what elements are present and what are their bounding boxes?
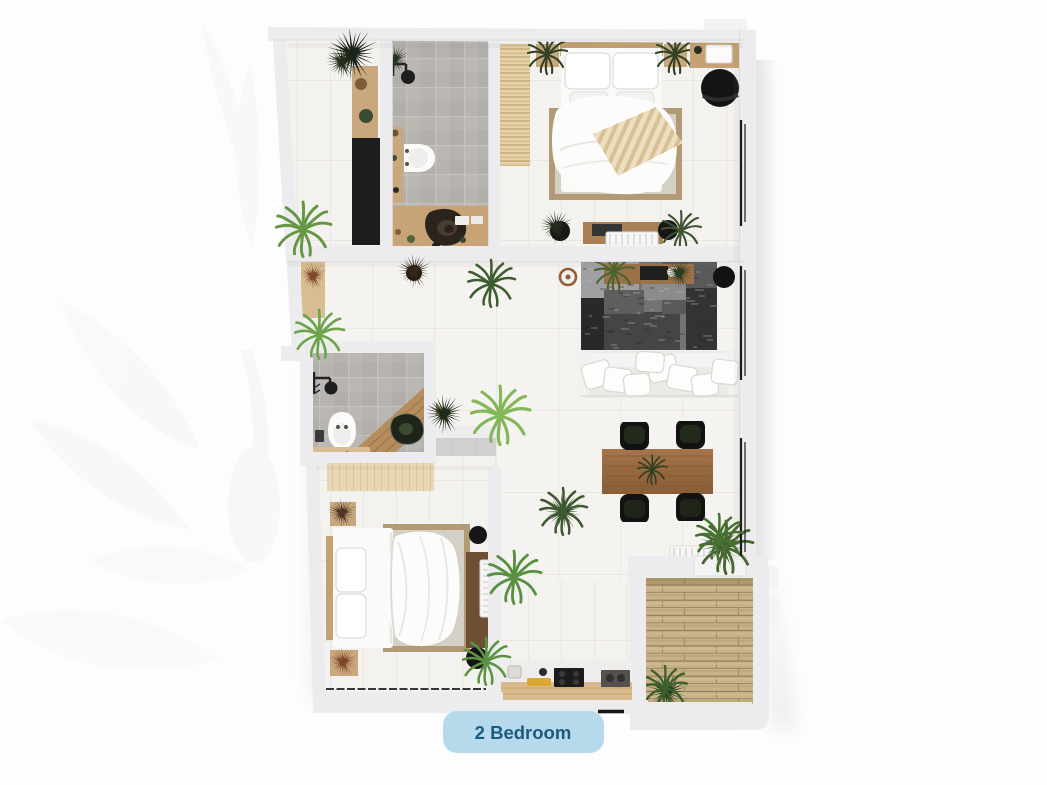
svg-text:2 Bedroom: 2 Bedroom (475, 722, 572, 743)
